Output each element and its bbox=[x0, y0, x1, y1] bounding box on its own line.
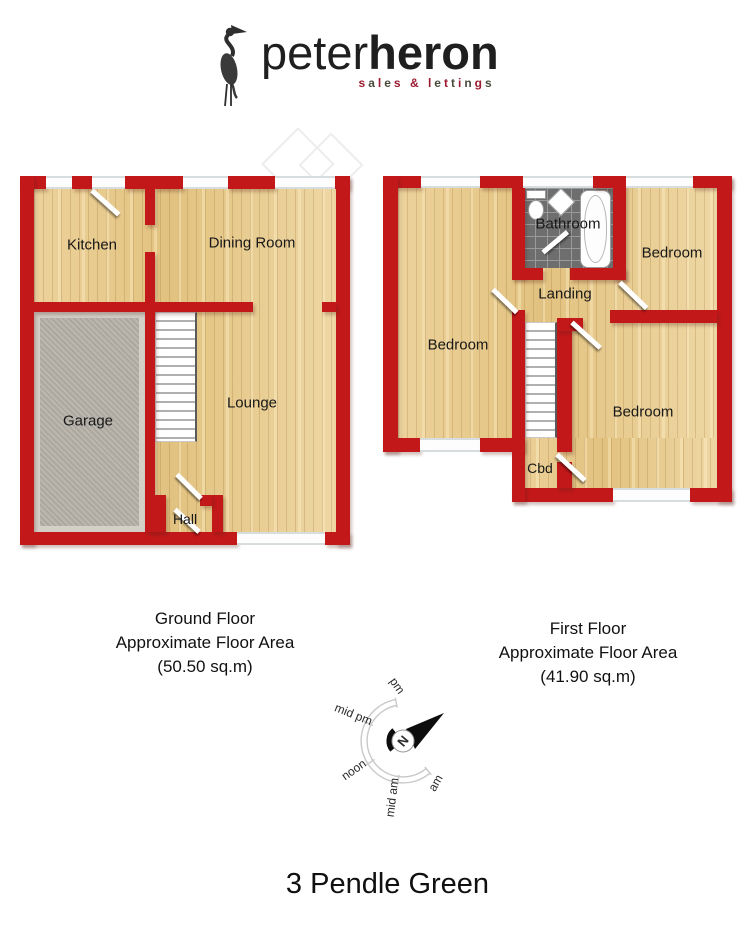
ground-floor-caption-line2: Approximate Floor Area bbox=[55, 631, 355, 655]
compass-rose: N pm mid pm noon mid am am bbox=[318, 674, 488, 839]
wall-segment bbox=[34, 302, 253, 312]
brand-name: peterheron bbox=[261, 24, 499, 82]
heron-bird-icon bbox=[213, 24, 257, 108]
wall-segment bbox=[383, 438, 420, 452]
staircase bbox=[525, 322, 557, 438]
wall-segment bbox=[20, 176, 34, 545]
compass-label-am: am bbox=[425, 772, 445, 793]
logo-tagline: sales & lettings bbox=[359, 76, 495, 90]
room-label-hall: Hall bbox=[173, 511, 197, 527]
wall-segment bbox=[610, 310, 717, 323]
ground-floor-caption-line3: (50.50 sq.m) bbox=[55, 655, 355, 679]
window bbox=[420, 438, 480, 452]
room-label-landing: Landing bbox=[538, 286, 591, 303]
wall-segment bbox=[512, 310, 525, 502]
room-label-bedroom-left: Bedroom bbox=[428, 337, 489, 354]
room-label-dining-room: Dining Room bbox=[209, 235, 296, 252]
wall-segment bbox=[557, 318, 572, 452]
window bbox=[421, 176, 480, 188]
wall-segment bbox=[325, 532, 350, 545]
wall-segment bbox=[20, 532, 237, 545]
room-label-cbd: Cbd bbox=[527, 460, 553, 476]
window bbox=[613, 488, 690, 502]
wall-segment bbox=[212, 495, 223, 532]
wall-segment bbox=[593, 176, 626, 188]
room-label-bedroom-front: Bedroom bbox=[642, 245, 703, 262]
floorplan-page: { "logo": { "brand_light": "peter", "bra… bbox=[0, 0, 755, 940]
room-label-kitchen: Kitchen bbox=[67, 237, 117, 254]
door-opening bbox=[92, 176, 125, 189]
wall-segment bbox=[228, 176, 275, 189]
wall-segment bbox=[322, 302, 336, 312]
first-floor-caption-line1: First Floor bbox=[438, 617, 738, 641]
ground-floor-plan: Kitchen Dining Room Garage Lounge Hall bbox=[20, 176, 350, 545]
room-label-lounge: Lounge bbox=[227, 395, 277, 412]
ground-floor-caption: Ground Floor Approximate Floor Area (50.… bbox=[55, 607, 355, 679]
wall-segment bbox=[512, 488, 613, 502]
wall-segment bbox=[613, 188, 626, 280]
wall-segment bbox=[145, 189, 155, 225]
wall-segment bbox=[383, 176, 398, 452]
compass-label-mid-am: mid am bbox=[383, 777, 402, 818]
ground-floor-caption-line1: Ground Floor bbox=[55, 607, 355, 631]
room-label-bathroom: Bathroom bbox=[535, 216, 600, 233]
wall-segment bbox=[570, 268, 626, 280]
wall-segment bbox=[153, 495, 166, 532]
wall-segment bbox=[690, 488, 732, 502]
window bbox=[46, 176, 72, 189]
property-title: 3 Pendle Green bbox=[10, 868, 755, 901]
first-floor-caption-line2: Approximate Floor Area bbox=[438, 641, 738, 665]
brand-name-peter: peter bbox=[261, 26, 368, 79]
room-label-bedroom-back: Bedroom bbox=[613, 404, 674, 421]
compass-label-mid-pm: mid pm bbox=[333, 700, 375, 728]
wall-segment bbox=[125, 176, 183, 189]
window bbox=[183, 176, 228, 189]
wall-segment bbox=[512, 188, 525, 278]
wall-segment bbox=[717, 176, 732, 502]
wall-segment bbox=[336, 176, 350, 545]
compass-label-pm: pm bbox=[387, 675, 408, 697]
window bbox=[237, 532, 325, 545]
compass-label-noon: noon bbox=[339, 756, 369, 783]
first-floor-plan: Bathroom Bedroom Bedroom Bedroom Landing… bbox=[383, 176, 732, 502]
window bbox=[275, 176, 335, 189]
window bbox=[626, 176, 693, 188]
room-label-garage: Garage bbox=[63, 413, 113, 430]
wall-segment bbox=[480, 176, 523, 188]
wall-segment bbox=[72, 176, 92, 189]
brand-name-heron: heron bbox=[368, 26, 499, 79]
agency-logo: peterheron sales & lettings bbox=[213, 24, 499, 108]
staircase bbox=[155, 312, 197, 442]
wall-segment bbox=[512, 268, 543, 280]
toilet-cistern bbox=[526, 190, 546, 199]
window bbox=[523, 176, 593, 188]
